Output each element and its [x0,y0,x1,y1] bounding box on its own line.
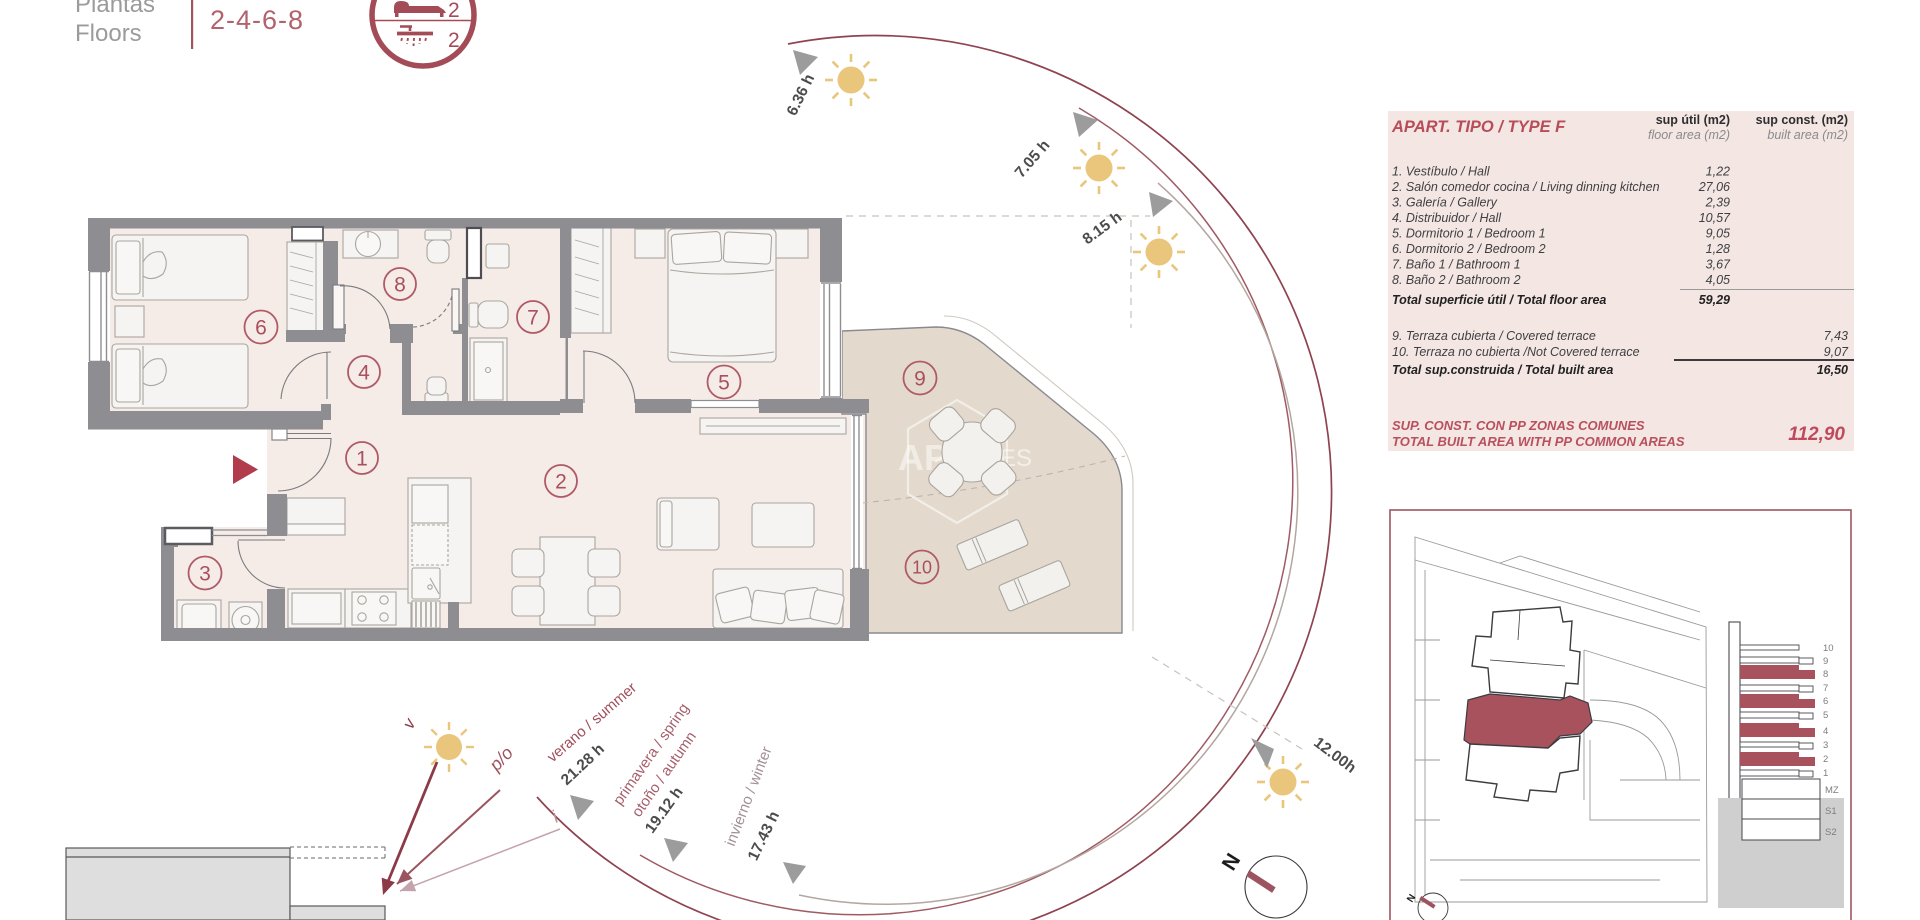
svg-text:59,29: 59,29 [1699,293,1730,307]
svg-text:112,90: 112,90 [1788,424,1845,445]
svg-text:8: 8 [394,274,406,297]
svg-text:7. Baño 1 / Bathroom 1: 7. Baño 1 / Bathroom 1 [1392,258,1521,272]
svg-text:2. Salón comedor cocina / Livi: 2. Salón comedor cocina / Living dinning… [1391,180,1660,194]
svg-text:1,28: 1,28 [1706,242,1730,256]
svg-text:2,39: 2,39 [1705,196,1730,210]
svg-text:built area (m2): built area (m2) [1767,128,1848,142]
svg-text:4,05: 4,05 [1706,273,1730,287]
svg-text:16,50: 16,50 [1817,363,1848,377]
svg-text:floor area (m2): floor area (m2) [1648,128,1730,142]
svg-text:3: 3 [199,563,211,586]
svg-text:10: 10 [912,558,932,578]
svg-text:6.36 h: 6.36 h [784,72,819,119]
svg-text:p/o: p/o [485,743,517,776]
svg-text:SUP. CONST. CON PP ZONAS COMUN: SUP. CONST. CON PP ZONAS COMUNES [1392,418,1645,433]
svg-text:Floors: Floors [75,20,142,47]
svg-text:2: 2 [448,29,460,52]
svg-text:APART. TIPO / TYPE F: APART. TIPO / TYPE F [1391,118,1566,136]
svg-text:TOTAL BUILT AREA WITH PP COMMO: TOTAL BUILT AREA WITH PP COMMON AREAS [1392,434,1685,449]
svg-text:10,57: 10,57 [1699,211,1731,225]
svg-text:7.05 h: 7.05 h [1012,137,1054,181]
svg-text:2: 2 [1823,754,1828,765]
svg-text:Plantas: Plantas [75,0,155,18]
svg-text:5: 5 [718,372,730,395]
svg-text:27,06: 27,06 [1698,180,1730,194]
svg-text:9: 9 [914,368,926,391]
svg-text:4. Distribuidor / Hall: 4. Distribuidor / Hall [1392,211,1502,225]
svg-text:10: 10 [1823,643,1834,654]
svg-text:3,67: 3,67 [1706,258,1731,272]
svg-text:N: N [1218,850,1246,875]
svg-text:9,07: 9,07 [1824,345,1849,359]
svg-text:sup útil (m2): sup útil (m2) [1656,113,1730,127]
svg-text:8. Baño 2 / Bathroom 2: 8. Baño 2 / Bathroom 2 [1392,273,1521,287]
svg-text:4: 4 [358,362,370,385]
svg-text:10. Terraza no cubierta /Not C: 10. Terraza no cubierta /Not Covered ter… [1392,345,1640,359]
svg-text:1: 1 [1823,768,1828,779]
svg-text:17.43 h: 17.43 h [745,809,783,864]
svg-text:6: 6 [255,317,267,340]
svg-text:4: 4 [1823,726,1828,737]
svg-text:S1: S1 [1825,806,1837,817]
svg-text:3: 3 [1823,740,1828,751]
svg-text:sup const. (m2): sup const. (m2) [1756,113,1848,127]
svg-text:3. Galería / Gallery: 3. Galería / Gallery [1392,196,1498,210]
svg-text:2-4-6-8: 2-4-6-8 [210,5,304,35]
svg-text:9,05: 9,05 [1706,227,1730,241]
svg-text:1,22: 1,22 [1706,165,1730,179]
svg-text:1. Vestíbulo / Hall: 1. Vestíbulo / Hall [1392,165,1491,179]
svg-text:2: 2 [448,0,460,22]
svg-text:MZ: MZ [1825,785,1839,796]
svg-text:7,43: 7,43 [1824,329,1848,343]
svg-text:2: 2 [555,471,567,494]
svg-text:Total superficie útil / Total: Total superficie útil / Total floor area [1392,293,1606,307]
svg-text:9. Terraza cubierta / Covered: 9. Terraza cubierta / Covered terrace [1392,329,1596,343]
svg-text:i: i [548,807,562,827]
svg-text:6. Dormitorio 2 / Bedroom 2: 6. Dormitorio 2 / Bedroom 2 [1392,242,1546,256]
svg-text:7: 7 [527,307,539,330]
svg-text:7: 7 [1823,683,1828,694]
svg-text:8: 8 [1823,669,1828,680]
svg-text:v: v [399,714,420,732]
svg-text:12.00h: 12.00h [1310,734,1359,777]
svg-text:6: 6 [1823,696,1828,707]
svg-text:1: 1 [356,448,368,471]
svg-text:5. Dormitorio 1 / Bedroom 1: 5. Dormitorio 1 / Bedroom 1 [1392,227,1546,241]
svg-text:9: 9 [1823,656,1828,667]
svg-text:8.15 h: 8.15 h [1080,209,1126,249]
svg-text:S2: S2 [1825,827,1837,838]
svg-text:5: 5 [1823,710,1828,721]
svg-text:Total sup.construida / Total b: Total sup.construida / Total built area [1392,363,1613,377]
